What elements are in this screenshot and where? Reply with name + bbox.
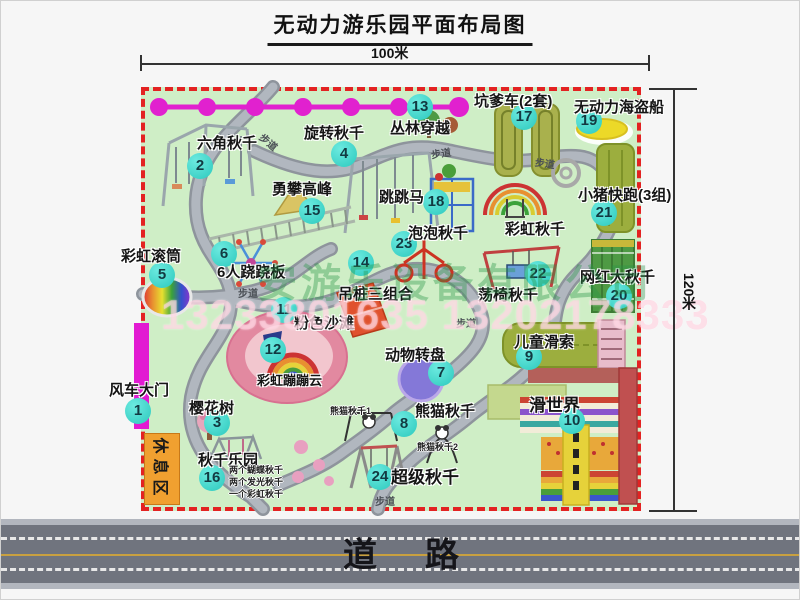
right-dimension-line	[673, 89, 675, 511]
road: 道路	[1, 519, 800, 589]
label-bubble-swing: 泡泡秋千	[408, 222, 468, 243]
rest-area-label: 休息区	[150, 437, 174, 500]
label-animal-carousel: 动物转盘	[385, 344, 445, 365]
swing-park-note: 一个彩虹秋千	[229, 487, 283, 500]
label-cherry-blossom-tree: 樱花树	[189, 397, 234, 418]
playground-layout-map: 无动力游乐园平面布局图 100米 120米	[0, 0, 800, 600]
label-super-swing: 超级秋千	[391, 463, 459, 488]
label-windmill-gate: 风车大门	[109, 379, 169, 400]
road-label: 道路	[1, 528, 800, 577]
label-panda-swing: 熊猫秋千	[415, 400, 475, 421]
width-dimension-label: 100米	[371, 43, 408, 63]
badge-rotating-swing: 4	[331, 141, 357, 167]
top-dimension-line	[141, 63, 649, 65]
badge-windmill-gate: 1	[125, 398, 151, 424]
label-pirate-ship: 无动力海盗船	[574, 96, 664, 117]
page-title: 无动力游乐园平面布局图	[268, 9, 533, 46]
label-panda-swing-2: 熊猫秋千2	[417, 440, 458, 453]
right-dimension-tick-bottom	[649, 510, 697, 512]
label-jungle-crossing: 丛林穿越	[390, 117, 450, 138]
label-slide-world: 滑世界	[529, 391, 580, 416]
label-rainbow-roller: 彩虹滚筒	[121, 245, 181, 266]
label-rainbow-bouncy-cloud: 彩虹蹦蹦云	[257, 370, 322, 389]
road-surface: 道路	[1, 525, 800, 583]
badge-super-swing: 24	[367, 464, 393, 490]
path-label: 步道	[534, 154, 556, 172]
top-dimension-tick-right	[648, 55, 650, 71]
right-dimension-tick-top	[649, 88, 697, 90]
height-dimension-label: 120米	[679, 273, 699, 310]
label-panda-swing-1: 熊猫秋千1	[330, 404, 371, 417]
label-pig-run: 小猪快跑(3组)	[578, 184, 671, 205]
label-pit-car: 坑爹车(2套)	[474, 90, 552, 111]
top-dimension-tick-left	[140, 55, 142, 71]
road-curb-bottom	[1, 583, 800, 589]
badge-jumping-horse: 18	[423, 189, 449, 215]
path-label: 步道	[430, 144, 452, 162]
badge-hexagon-swing: 2	[187, 153, 213, 179]
label-rotating-swing: 旋转秋千	[304, 122, 364, 143]
label-jumping-horse: 跳跳马	[379, 186, 424, 207]
label-hexagon-swing: 六角秋千	[197, 132, 257, 153]
badge-panda-swing: 8	[391, 411, 417, 437]
label-rainbow-swing: 彩虹秋千	[505, 218, 565, 239]
watermark-phone: 13233801635 13202178333	[161, 291, 710, 339]
path-label: 步道	[375, 493, 395, 508]
badge-peak-climbing: 15	[299, 198, 325, 224]
badge-rainbow-bouncy-cloud: 12	[260, 337, 286, 363]
rest-area: 休息区	[144, 433, 180, 505]
label-peak-climbing: 勇攀高峰	[272, 178, 332, 199]
